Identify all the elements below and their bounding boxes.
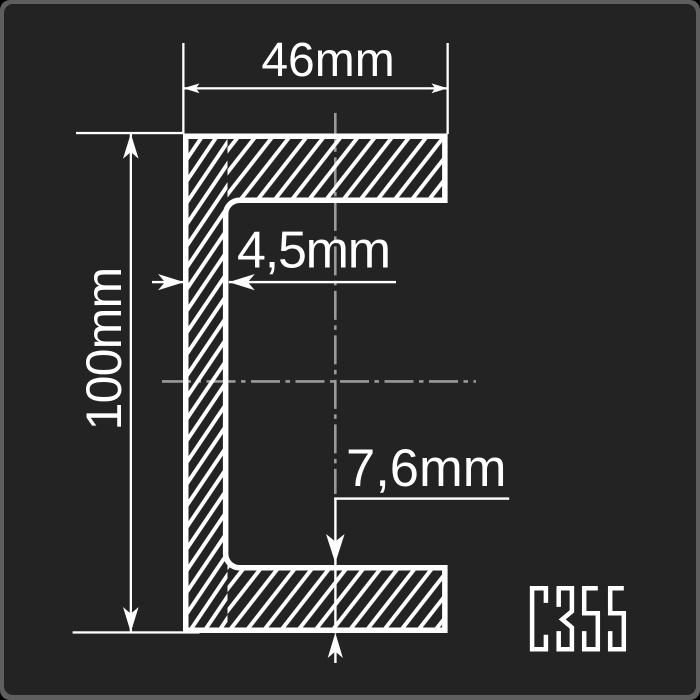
svg-text:7,6mm: 7,6mm — [346, 439, 506, 498]
svg-text:46mm: 46mm — [261, 34, 394, 87]
svg-text:100mm: 100mm — [76, 268, 132, 431]
svg-text:4,5mm: 4,5mm — [237, 222, 390, 280]
